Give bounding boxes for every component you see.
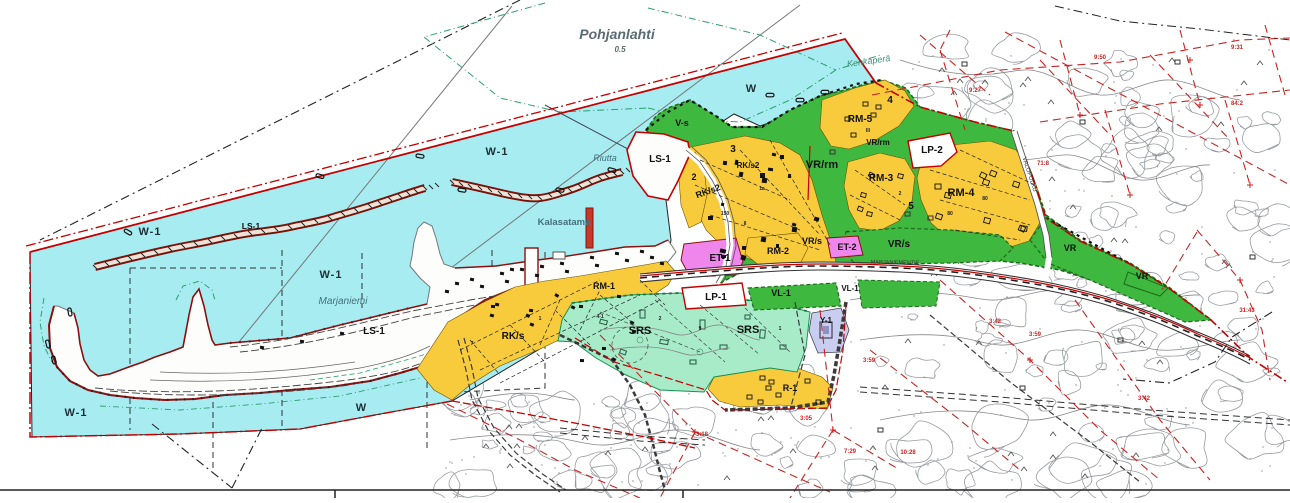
svg-text:80: 80 [982,196,988,202]
svg-text:V-s: V-s [675,118,689,128]
svg-text:3:59: 3:59 [1029,332,1042,338]
svg-text:Pohjanlahti: Pohjanlahti [579,26,656,42]
svg-text:84:2: 84:2 [1231,101,1244,107]
svg-text:RM-5: RM-5 [848,114,873,125]
svg-text:MARJANIEMENTIE: MARJANIEMENTIE [871,260,920,267]
svg-text:3:18: 3:18 [696,432,709,438]
svg-text:3:42: 3:42 [989,319,1002,325]
svg-text:VL-1: VL-1 [841,284,859,293]
svg-text:80: 80 [947,211,953,217]
svg-text:VR: VR [1136,271,1149,281]
svg-text:150: 150 [721,211,730,217]
svg-text:2: 2 [659,316,662,322]
svg-text:4: 4 [887,95,893,106]
svg-text:R-1: R-1 [783,383,798,393]
svg-text:31:43: 31:43 [1239,308,1255,314]
svg-text:VR/rm: VR/rm [866,138,890,147]
svg-text:7: 7 [471,341,474,347]
svg-text:3: 3 [730,144,736,155]
svg-text:0.5: 0.5 [614,45,626,54]
svg-text:VR/s: VR/s [802,236,822,246]
svg-text:3:59: 3:59 [863,358,876,364]
svg-text:7:29: 7:29 [844,449,857,455]
svg-text:3:42: 3:42 [1138,396,1151,402]
svg-text:W: W [746,83,757,95]
svg-text:1: 1 [539,316,542,322]
svg-text:VR: VR [1064,243,1077,253]
svg-text:9: 9 [699,326,702,332]
svg-text:1: 1 [779,326,782,332]
svg-text:9:31: 9:31 [1231,45,1244,51]
svg-text:9:50: 9:50 [1094,55,1107,61]
svg-text:3:05: 3:05 [800,416,813,422]
svg-text:LP-1: LP-1 [705,292,727,303]
svg-text:VL-1: VL-1 [771,288,791,298]
svg-text:III: III [866,128,871,134]
svg-text:ET-2: ET-2 [837,242,856,252]
svg-text:W-1: W-1 [65,407,88,419]
svg-text:ET-1: ET-1 [709,253,731,264]
svg-text:LS-1: LS-1 [363,326,385,337]
svg-text:SRS: SRS [629,325,652,337]
svg-text:LS-1: LS-1 [649,154,671,165]
svg-text:RM-4: RM-4 [948,187,976,199]
svg-text:4-1: 4-1 [596,314,603,320]
svg-text:Kalasatama: Kalasatama [538,217,592,228]
svg-text:RM-1: RM-1 [593,281,615,291]
svg-text:VR/s: VR/s [888,239,911,250]
svg-text:LS-1: LS-1 [242,221,261,231]
svg-text:1a: 1a [759,186,765,192]
svg-text:2: 2 [899,191,902,197]
svg-text:RM-2: RM-2 [767,246,789,256]
svg-text:Riutta: Riutta [593,153,617,163]
svg-text:Marjaniemi: Marjaniemi [319,296,369,307]
svg-text:71:8: 71:8 [1037,161,1050,167]
svg-text:9:27: 9:27 [969,88,982,94]
svg-text:5: 5 [908,201,914,212]
svg-text:LP-2: LP-2 [921,145,943,156]
svg-text:W-1: W-1 [320,269,343,281]
svg-text:W-1: W-1 [139,226,162,238]
svg-text:Y-1: Y-1 [820,316,833,325]
svg-text:SRS: SRS [737,324,760,336]
svg-text:VR/rm: VR/rm [806,159,839,171]
svg-text:2: 2 [691,172,696,182]
svg-text:RM-3: RM-3 [869,173,894,184]
svg-text:RK/s2: RK/s2 [737,161,760,170]
svg-text:RK/s: RK/s [502,331,525,342]
svg-text:W-1: W-1 [486,146,509,158]
svg-text:10:28: 10:28 [900,450,916,456]
svg-text:W: W [356,402,367,414]
